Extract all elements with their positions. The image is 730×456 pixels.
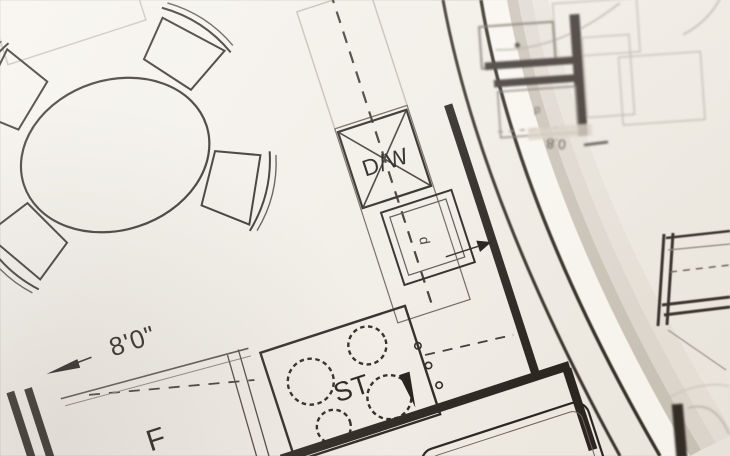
floorplan-photo: D/W d (0, 0, 730, 456)
floorplan-drawing: D/W d (0, 0, 730, 456)
shade-overlay (0, 0, 730, 456)
